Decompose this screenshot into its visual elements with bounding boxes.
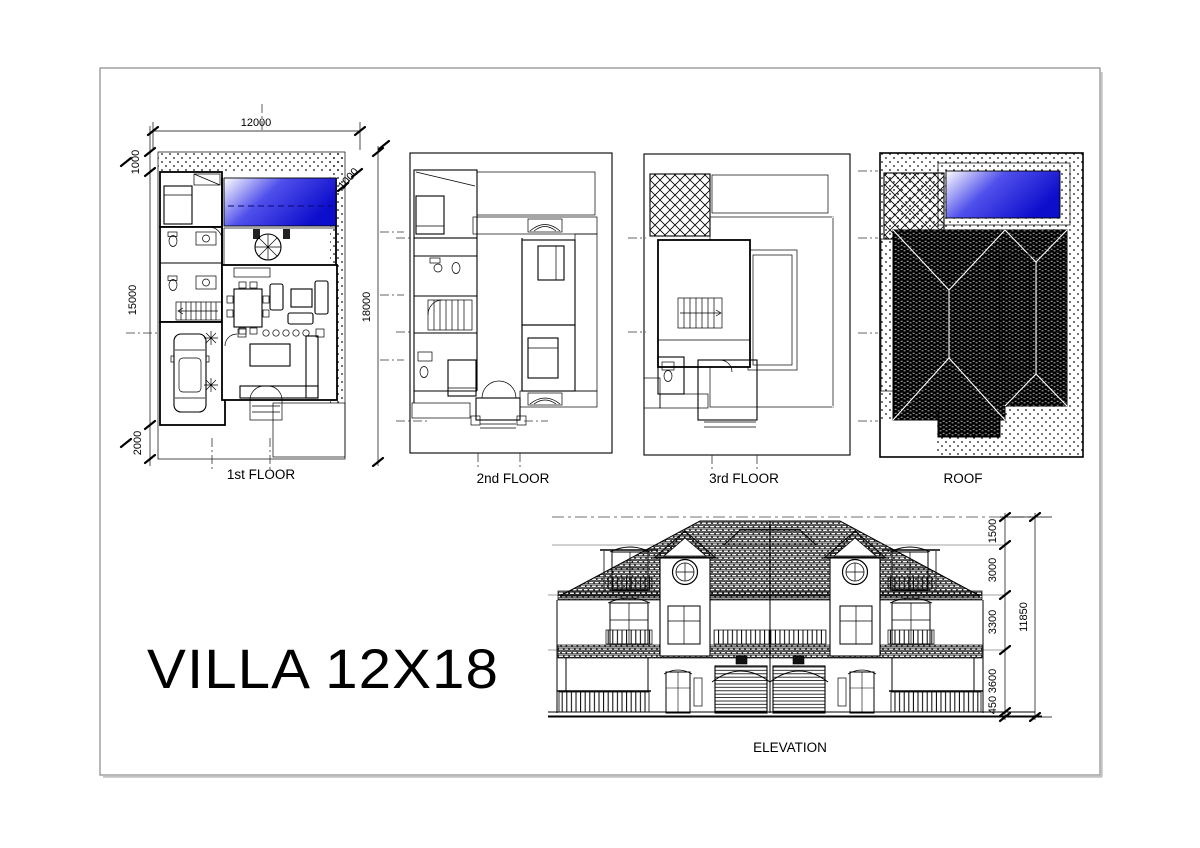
pergola-roof-hatch — [884, 173, 944, 239]
pool-roof — [946, 171, 1060, 218]
dim-first-offset-bottom-left: 2000 — [132, 431, 144, 455]
drawing-sheet-canvas: 12000 1000 15000 2000 18000 1000 — [0, 0, 1200, 848]
roof-gap — [881, 421, 937, 456]
plan-caption-roof: ROOF — [944, 471, 983, 486]
dim-first-offset-top-left: 1000 — [130, 150, 142, 174]
dim-first-depth-left: 15000 — [127, 285, 139, 316]
dim-first-depth-right: 18000 — [361, 292, 373, 323]
plant-icon — [204, 331, 218, 345]
plant-icon — [204, 378, 218, 392]
dim-elev-third: 3000 — [987, 558, 999, 582]
dim-elev-total: 11850 — [1018, 602, 1030, 632]
dim-elev-parapet: 1500 — [987, 519, 999, 543]
pergola-hatch — [650, 174, 710, 236]
dim-first-width-top: 12000 — [241, 117, 272, 129]
villa-drawing-svg: 12000 1000 15000 2000 18000 1000 — [0, 0, 1200, 848]
sheet-title: VILLA 12X18 — [147, 637, 499, 700]
dim-elev-first: 3600 — [987, 669, 999, 693]
elevation-caption: ELEVATION — [753, 740, 827, 755]
pool-first-floor — [224, 178, 336, 226]
plan-roof: ROOF — [858, 153, 1083, 486]
dim-elev-second: 3300 — [987, 610, 999, 634]
plan-caption-second-floor: 2nd FLOOR — [477, 471, 550, 486]
dim-elev-plinth: 450 — [987, 696, 999, 714]
plan-caption-first-floor: 1st FLOOR — [227, 467, 296, 482]
plan-caption-third-floor: 3rd FLOOR — [709, 471, 779, 486]
